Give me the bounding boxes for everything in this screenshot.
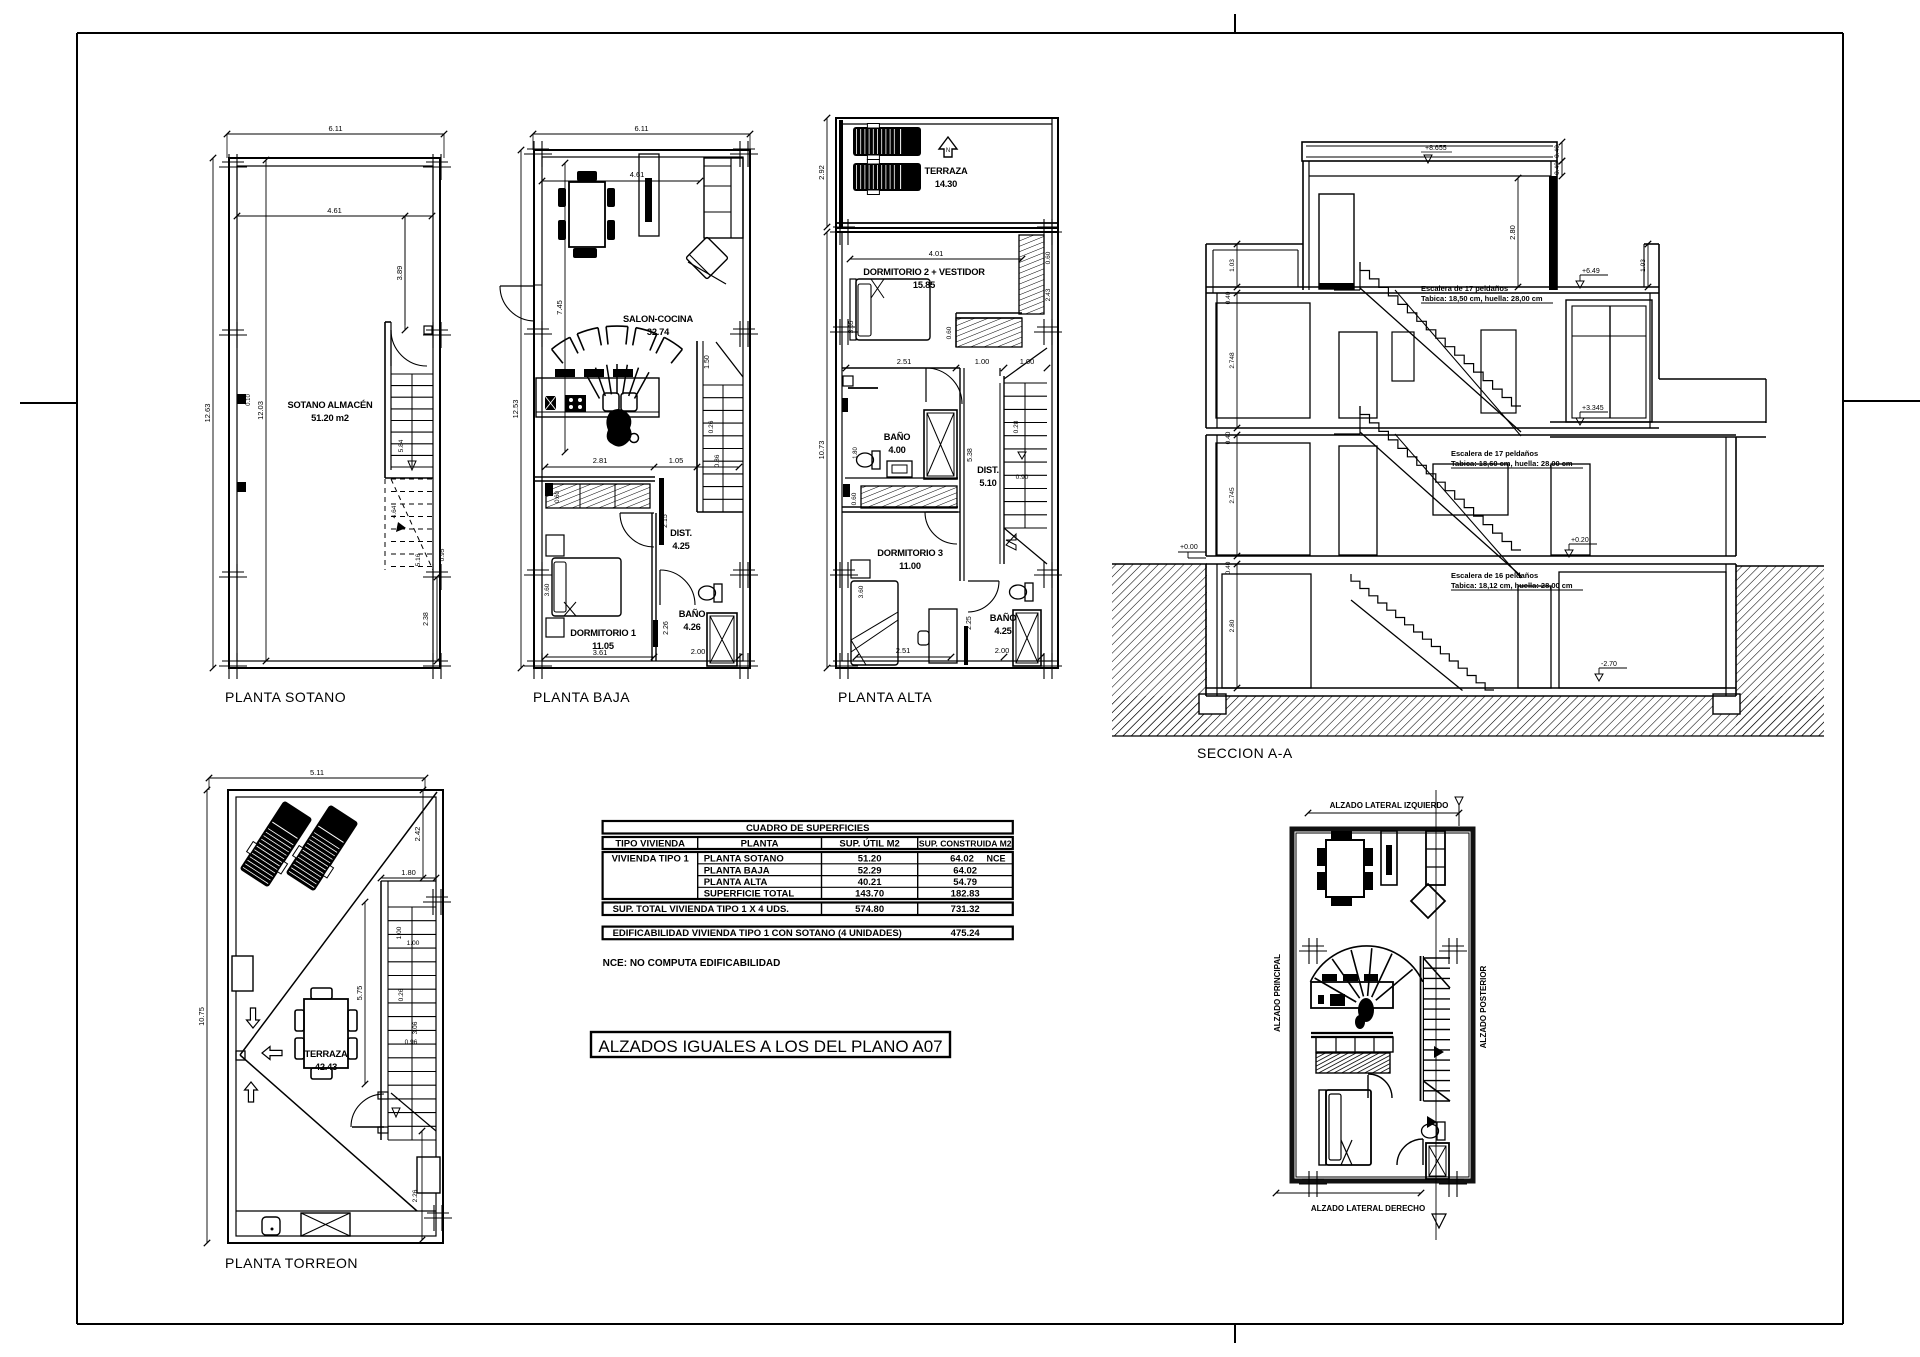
- svg-text:NCE: NO COMPUTA EDIFICABILIDA: NCE: NO COMPUTA EDIFICABILIDAD: [603, 958, 781, 969]
- svg-text:SUPERFICIE TOTAL: SUPERFICIE TOTAL: [704, 889, 795, 900]
- svg-text:2.38: 2.38: [423, 612, 430, 626]
- svg-text:0.86: 0.86: [714, 454, 721, 467]
- svg-text:SUP. CONSTRUIDA M2: SUP. CONSTRUIDA M2: [919, 839, 1012, 849]
- svg-text:6.11: 6.11: [328, 124, 342, 133]
- svg-text:PLANTA BAJA: PLANTA BAJA: [704, 865, 770, 876]
- svg-text:2.26: 2.26: [663, 621, 670, 635]
- svg-text:ALZADO POSTERIOR: ALZADO POSTERIOR: [1479, 965, 1488, 1048]
- svg-text:0.10: 0.10: [246, 394, 252, 406]
- svg-text:SUP. TOTAL VIVIENDA TIPO 1 X 4: SUP. TOTAL VIVIENDA TIPO 1 X 4 UDS.: [613, 904, 789, 915]
- svg-text:PLANTA TORREON: PLANTA TORREON: [225, 1255, 358, 1271]
- svg-text:0.26: 0.26: [708, 420, 715, 433]
- svg-text:574.80: 574.80: [855, 904, 884, 915]
- svg-text:PLANTA BAJA: PLANTA BAJA: [533, 689, 630, 705]
- svg-text:1.03: 1.03: [1229, 259, 1236, 272]
- svg-text:2.00: 2.00: [995, 646, 1010, 655]
- svg-text:2.42: 2.42: [413, 827, 422, 842]
- svg-text:PLANTA SOTANO: PLANTA SOTANO: [225, 689, 346, 705]
- svg-text:1.00: 1.00: [975, 357, 990, 366]
- svg-text:2.81: 2.81: [593, 456, 608, 465]
- svg-text:4.25: 4.25: [672, 541, 689, 551]
- svg-text:14.30: 14.30: [935, 179, 957, 189]
- svg-text:52.29: 52.29: [858, 865, 882, 876]
- svg-text:10.73: 10.73: [817, 441, 826, 460]
- svg-text:TERRAZA: TERRAZA: [924, 166, 968, 176]
- svg-text:+6.49: +6.49: [1582, 268, 1600, 275]
- svg-text:5.84: 5.84: [398, 439, 405, 452]
- svg-text:PLANTA ALTA: PLANTA ALTA: [704, 877, 768, 888]
- svg-text:6.11: 6.11: [634, 124, 648, 133]
- svg-text:1.00: 1.00: [407, 940, 420, 947]
- svg-text:4.26: 4.26: [683, 622, 700, 632]
- svg-text:ALZADO LATERAL DERECHO: ALZADO LATERAL DERECHO: [1311, 1204, 1425, 1213]
- svg-text:2.80: 2.80: [1508, 225, 1517, 240]
- svg-text:12.63: 12.63: [203, 404, 212, 423]
- svg-text:0.60: 0.60: [555, 491, 561, 503]
- svg-text:64.02: 64.02: [950, 854, 974, 865]
- svg-text:Tabica: 18,50 cm, huella: 28,0: Tabica: 18,50 cm, huella: 28,00 cm: [1421, 294, 1543, 303]
- svg-text:ALZADO PRINCIPAL: ALZADO PRINCIPAL: [1273, 954, 1282, 1032]
- svg-text:-2.70: -2.70: [1601, 661, 1617, 668]
- svg-text:2.26: 2.26: [412, 1189, 419, 1202]
- svg-text:2.51: 2.51: [896, 646, 911, 655]
- svg-text:SECCION A-A: SECCION A-A: [1197, 745, 1293, 761]
- svg-text:3.60: 3.60: [858, 585, 865, 598]
- svg-text:DIST.: DIST.: [670, 528, 692, 538]
- svg-text:182.83: 182.83: [951, 889, 980, 900]
- svg-text:4.61: 4.61: [327, 206, 342, 215]
- svg-text:42.43: 42.43: [315, 1062, 337, 1072]
- svg-text:+0.00: +0.00: [1180, 544, 1198, 551]
- svg-text:DIST.: DIST.: [977, 465, 999, 475]
- svg-text:1.00: 1.00: [396, 926, 403, 939]
- svg-text:143.70: 143.70: [855, 889, 884, 900]
- svg-text:731.32: 731.32: [951, 904, 980, 915]
- svg-text:DORMITORIO 2 + VESTIDOR: DORMITORIO 2 + VESTIDOR: [863, 267, 985, 277]
- svg-text:SOTANO ALMACÉN: SOTANO ALMACÉN: [288, 400, 373, 410]
- svg-text:5.10: 5.10: [979, 478, 996, 488]
- svg-text:+0.20: +0.20: [1571, 537, 1589, 544]
- svg-text:5.75: 5.75: [355, 986, 364, 1001]
- svg-text:SALON-COCINA: SALON-COCINA: [623, 314, 693, 324]
- svg-text:PLANTA ALTA: PLANTA ALTA: [838, 689, 932, 705]
- svg-text:2.745: 2.745: [1229, 487, 1236, 504]
- svg-text:2.80: 2.80: [1229, 619, 1236, 632]
- svg-text:64.02: 64.02: [953, 865, 977, 876]
- svg-text:2.92: 2.92: [817, 165, 826, 180]
- svg-text:BAÑO: BAÑO: [884, 432, 911, 442]
- svg-text:TIPO VIVIENDA: TIPO VIVIENDA: [615, 839, 685, 850]
- svg-text:VIVIENDA TIPO 1: VIVIENDA TIPO 1: [612, 854, 690, 865]
- svg-text:1.80: 1.80: [853, 447, 859, 459]
- svg-text:4.64: 4.64: [391, 505, 398, 518]
- svg-text:0.95: 0.95: [439, 548, 446, 561]
- svg-text:3.60: 3.60: [544, 583, 551, 596]
- svg-text:ALZADO LATERAL IZQUIERDO: ALZADO LATERAL IZQUIERDO: [1330, 801, 1449, 810]
- svg-text:PLANTA SOTANO: PLANTA SOTANO: [704, 854, 784, 865]
- svg-text:11.00: 11.00: [899, 561, 921, 571]
- svg-text:ALZADOS IGUALES A LOS DEL PLAN: ALZADOS IGUALES A LOS DEL PLANO A07: [598, 1037, 942, 1056]
- svg-text:1.03: 1.03: [1640, 259, 1647, 272]
- svg-text:2.748: 2.748: [1229, 352, 1236, 369]
- svg-text:DORMITORIO 1: DORMITORIO 1: [570, 628, 636, 638]
- svg-text:SUP. ÚTIL M2: SUP. ÚTIL M2: [839, 838, 899, 850]
- svg-text:Escalera de 17 peldaños: Escalera de 17 peldaños: [1451, 449, 1538, 458]
- svg-text:Tabica: 18,12 cm, huella: 28,0: Tabica: 18,12 cm, huella: 28,00 cm: [1451, 581, 1573, 590]
- svg-text:EDIFICABILIDAD VIVIENDA TIPO 1: EDIFICABILIDAD VIVIENDA TIPO 1 CON SOTAN…: [613, 928, 902, 939]
- svg-text:0.96: 0.96: [405, 1039, 418, 1046]
- svg-text:475.24: 475.24: [951, 928, 981, 939]
- svg-text:12.03: 12.03: [256, 401, 265, 420]
- svg-text:+3.345: +3.345: [1582, 405, 1604, 412]
- svg-text:1.50: 1.50: [704, 355, 711, 369]
- svg-text:2.00: 2.00: [691, 647, 706, 656]
- svg-text:51.20 m2: 51.20 m2: [311, 413, 349, 423]
- svg-text:5.11: 5.11: [310, 768, 324, 777]
- svg-text:10.75: 10.75: [197, 1007, 206, 1026]
- svg-text:54.79: 54.79: [953, 877, 977, 888]
- svg-text:TERRAZA: TERRAZA: [304, 1049, 348, 1059]
- svg-text:0.40: 0.40: [1225, 561, 1232, 574]
- svg-text:Escalera de 17 peldaños: Escalera de 17 peldaños: [1421, 284, 1508, 293]
- svg-text:2.15: 2.15: [662, 514, 669, 528]
- svg-text:Tabica: 18,60 cm, huella: 28,0: Tabica: 18,60 cm, huella: 28,00 cm: [1451, 459, 1573, 468]
- svg-text:3.61: 3.61: [593, 648, 608, 657]
- svg-text:3.89: 3.89: [395, 266, 404, 281]
- svg-text:4.00: 4.00: [888, 445, 905, 455]
- svg-text:1.05: 1.05: [669, 456, 684, 465]
- svg-text:0.60: 0.60: [1045, 251, 1052, 264]
- svg-text:+8.655: +8.655: [1425, 145, 1447, 152]
- svg-text:0.60: 0.60: [851, 492, 858, 505]
- svg-text:Escalera de 16 peldaños: Escalera de 16 peldaños: [1451, 571, 1538, 580]
- svg-text:DORMITORIO 3: DORMITORIO 3: [877, 548, 943, 558]
- svg-text:CUADRO DE SUPERFICIES: CUADRO DE SUPERFICIES: [746, 823, 870, 834]
- svg-text:4.01: 4.01: [929, 249, 944, 258]
- svg-text:PLANTA: PLANTA: [741, 839, 779, 850]
- svg-text:NCE: NCE: [986, 854, 1005, 864]
- svg-text:0.28: 0.28: [1013, 420, 1020, 433]
- svg-text:3.06: 3.06: [412, 1021, 419, 1034]
- svg-text:12.53: 12.53: [511, 400, 520, 419]
- svg-text:4.61: 4.61: [630, 170, 645, 179]
- svg-text:7.45: 7.45: [555, 300, 564, 315]
- svg-text:2.25: 2.25: [966, 616, 973, 630]
- svg-text:0.90: 0.90: [1016, 474, 1029, 481]
- svg-text:2.51: 2.51: [897, 357, 912, 366]
- svg-text:BAÑO: BAÑO: [679, 609, 706, 619]
- svg-text:4.25: 4.25: [994, 626, 1011, 636]
- svg-text:5.38: 5.38: [967, 448, 974, 462]
- svg-text:5.16: 5.16: [415, 553, 422, 566]
- svg-text:N: N: [946, 148, 950, 154]
- svg-text:1.80: 1.80: [401, 868, 416, 877]
- svg-text:2.43: 2.43: [1045, 288, 1052, 301]
- svg-text:0.26: 0.26: [398, 988, 405, 1001]
- svg-text:15.85: 15.85: [913, 280, 935, 290]
- svg-text:0.40: 0.40: [1554, 145, 1561, 158]
- svg-text:51.20: 51.20: [858, 854, 882, 865]
- svg-text:0.60: 0.60: [946, 326, 953, 339]
- svg-text:40.21: 40.21: [858, 877, 882, 888]
